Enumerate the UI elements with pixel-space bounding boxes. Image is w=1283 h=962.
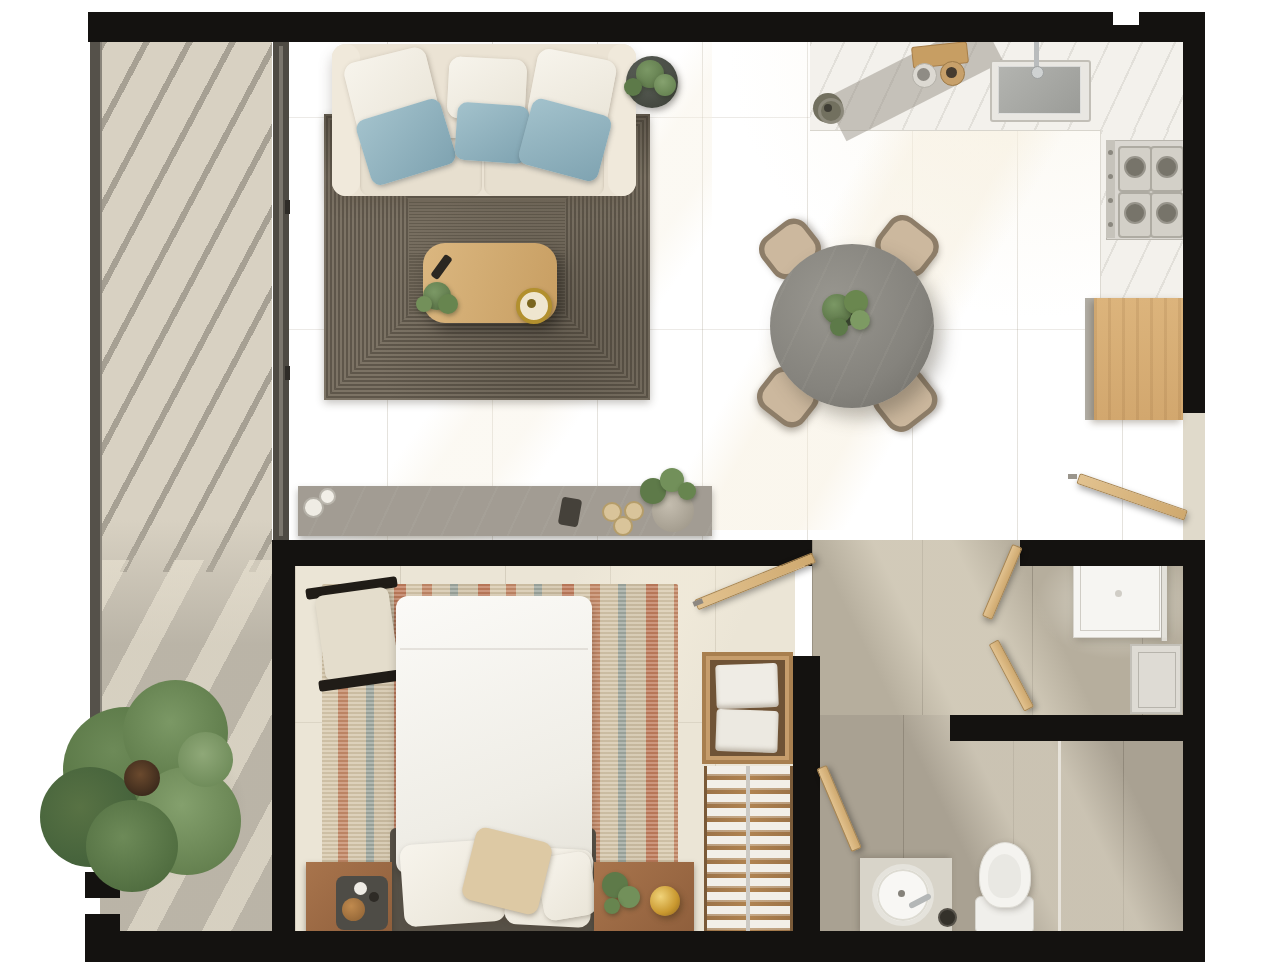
floor-plan-canvas xyxy=(0,0,1283,962)
entry-door-open xyxy=(1076,473,1187,521)
tree-trunk xyxy=(124,760,160,796)
tree-canopy xyxy=(178,732,233,787)
balcony-tree xyxy=(28,672,243,907)
bedroom-door-open xyxy=(694,552,816,610)
door-stop-mark xyxy=(1068,474,1077,479)
bathroom-door-open xyxy=(816,765,861,852)
hall-door-open xyxy=(982,544,1023,620)
tree-canopy xyxy=(86,800,178,892)
hall-door-open xyxy=(989,639,1034,711)
